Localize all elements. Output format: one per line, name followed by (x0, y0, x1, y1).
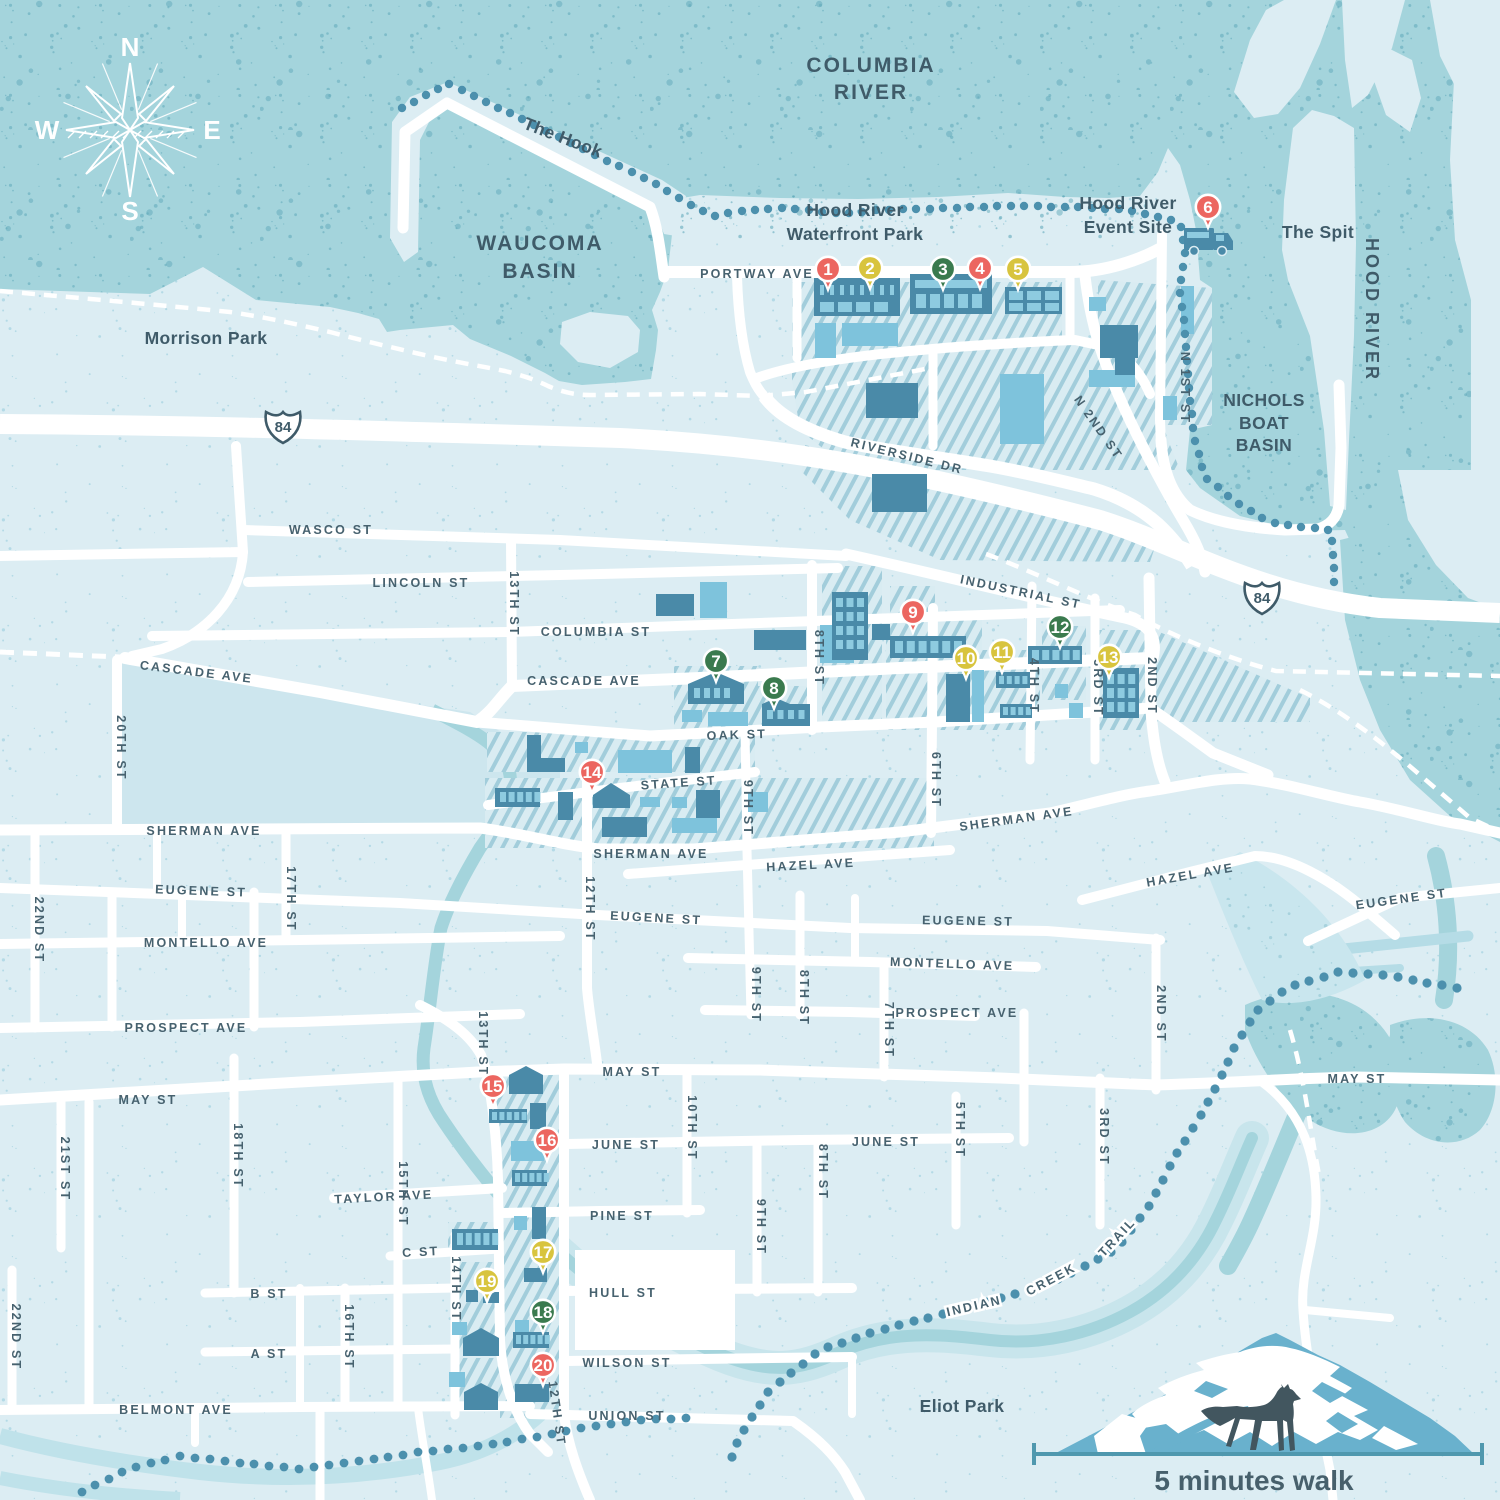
svg-text:BELMONT AVE: BELMONT AVE (119, 1403, 233, 1417)
svg-text:N: N (121, 32, 140, 62)
svg-text:13TH ST: 13TH ST (507, 571, 521, 636)
svg-text:9: 9 (908, 603, 917, 622)
svg-text:PROSPECT AVE: PROSPECT AVE (125, 1021, 248, 1035)
svg-text:5: 5 (1013, 260, 1022, 279)
svg-text:8TH ST: 8TH ST (816, 1144, 830, 1200)
svg-text:3RD ST: 3RD ST (1097, 1108, 1111, 1166)
svg-text:Hood River: Hood River (1079, 193, 1176, 213)
svg-text:Eliot Park: Eliot Park (920, 1396, 1005, 1416)
svg-text:Waterfront Park: Waterfront Park (787, 224, 924, 244)
svg-text:13: 13 (1100, 648, 1119, 667)
svg-text:19: 19 (478, 1272, 497, 1291)
svg-text:SHERMAN AVE: SHERMAN AVE (593, 847, 708, 861)
svg-text:PINE ST: PINE ST (590, 1209, 654, 1223)
svg-text:MAY ST: MAY ST (1327, 1072, 1386, 1086)
svg-text:9TH ST: 9TH ST (754, 1199, 768, 1255)
svg-text:EUGENE ST: EUGENE ST (922, 913, 1014, 929)
svg-text:C ST: C ST (402, 1244, 440, 1260)
svg-text:13TH ST: 13TH ST (476, 1011, 490, 1076)
svg-text:RIVER: RIVER (834, 81, 908, 104)
svg-text:3: 3 (938, 260, 947, 279)
svg-text:Morrison Park: Morrison Park (145, 328, 268, 348)
svg-text:BOAT: BOAT (1239, 413, 1289, 433)
svg-text:22ND ST: 22ND ST (9, 1304, 23, 1371)
svg-text:20: 20 (534, 1356, 553, 1375)
svg-text:5 minutes walk: 5 minutes walk (1154, 1465, 1354, 1496)
svg-text:84: 84 (1254, 590, 1271, 607)
svg-text:Event Site: Event Site (1084, 217, 1173, 237)
svg-text:E: E (203, 115, 220, 145)
svg-text:8TH ST: 8TH ST (812, 630, 826, 686)
svg-text:MAY ST: MAY ST (602, 1065, 661, 1079)
svg-text:18TH ST: 18TH ST (231, 1123, 245, 1188)
svg-text:CASCADE AVE: CASCADE AVE (527, 674, 641, 688)
svg-text:WAUCOMA: WAUCOMA (476, 232, 603, 255)
svg-text:5TH ST: 5TH ST (953, 1102, 967, 1158)
svg-text:16: 16 (538, 1131, 557, 1150)
svg-text:17: 17 (534, 1243, 553, 1262)
svg-text:9TH ST: 9TH ST (749, 967, 763, 1023)
svg-text:WASCO ST: WASCO ST (289, 523, 373, 537)
svg-text:17TH ST: 17TH ST (284, 866, 298, 931)
svg-text:SHERMAN AVE: SHERMAN AVE (146, 824, 261, 838)
svg-text:14: 14 (583, 763, 602, 782)
svg-text:20TH ST: 20TH ST (114, 715, 128, 780)
svg-text:22ND ST: 22ND ST (32, 897, 46, 964)
svg-text:6: 6 (1203, 198, 1212, 217)
svg-text:8: 8 (769, 679, 778, 698)
svg-text:16TH ST: 16TH ST (342, 1304, 356, 1369)
svg-text:15: 15 (484, 1077, 503, 1096)
svg-text:11: 11 (993, 643, 1011, 662)
svg-text:6TH ST: 6TH ST (929, 752, 943, 808)
svg-text:15TH ST: 15TH ST (396, 1161, 410, 1226)
svg-text:BASIN: BASIN (1236, 435, 1292, 455)
svg-text:COLUMBIA ST: COLUMBIA ST (541, 625, 652, 639)
svg-text:7TH ST: 7TH ST (882, 1002, 896, 1058)
svg-text:JUNE ST: JUNE ST (592, 1138, 660, 1152)
svg-text:Hood River: Hood River (806, 200, 903, 220)
svg-text:4: 4 (975, 259, 985, 278)
svg-text:14TH ST: 14TH ST (449, 1256, 463, 1321)
svg-text:2ND ST: 2ND ST (1154, 985, 1168, 1043)
svg-text:2: 2 (865, 259, 874, 278)
svg-text:S: S (121, 196, 138, 226)
svg-text:7: 7 (711, 652, 720, 671)
svg-text:8TH ST: 8TH ST (797, 970, 811, 1026)
svg-text:COLUMBIA: COLUMBIA (806, 54, 935, 77)
svg-text:A ST: A ST (251, 1347, 288, 1361)
svg-text:10TH ST: 10TH ST (685, 1095, 699, 1160)
svg-text:MAY ST: MAY ST (118, 1093, 177, 1107)
svg-text:LINCOLN ST: LINCOLN ST (373, 576, 470, 590)
svg-text:21ST ST: 21ST ST (58, 1137, 72, 1202)
svg-text:W: W (35, 115, 60, 145)
svg-text:4TH ST: 4TH ST (1027, 658, 1041, 714)
svg-text:12: 12 (1051, 618, 1070, 637)
svg-text:12TH ST: 12TH ST (583, 876, 597, 941)
svg-text:HOOD RIVER: HOOD RIVER (1362, 238, 1382, 382)
svg-text:JUNE ST: JUNE ST (852, 1135, 920, 1149)
svg-text:NICHOLS: NICHOLS (1223, 390, 1305, 410)
svg-text:HULL ST: HULL ST (589, 1286, 657, 1300)
svg-text:N 1ST ST: N 1ST ST (1178, 352, 1192, 424)
svg-text:B ST: B ST (250, 1287, 287, 1301)
svg-text:UNION ST: UNION ST (588, 1409, 665, 1423)
svg-text:MONTELLO AVE: MONTELLO AVE (144, 936, 268, 950)
svg-text:2ND ST: 2ND ST (1145, 657, 1159, 715)
svg-text:9TH ST: 9TH ST (741, 780, 755, 836)
svg-text:84: 84 (275, 419, 292, 436)
svg-text:10: 10 (957, 649, 976, 668)
svg-text:BASIN: BASIN (502, 260, 577, 283)
svg-text:The Spit: The Spit (1282, 222, 1354, 242)
svg-text:1: 1 (823, 260, 832, 279)
svg-text:PORTWAY AVE: PORTWAY AVE (700, 267, 814, 281)
svg-text:18: 18 (534, 1303, 553, 1322)
svg-text:PROSPECT AVE: PROSPECT AVE (896, 1006, 1019, 1020)
svg-text:WILSON ST: WILSON ST (582, 1356, 671, 1370)
svg-text:OAK ST: OAK ST (706, 727, 767, 743)
